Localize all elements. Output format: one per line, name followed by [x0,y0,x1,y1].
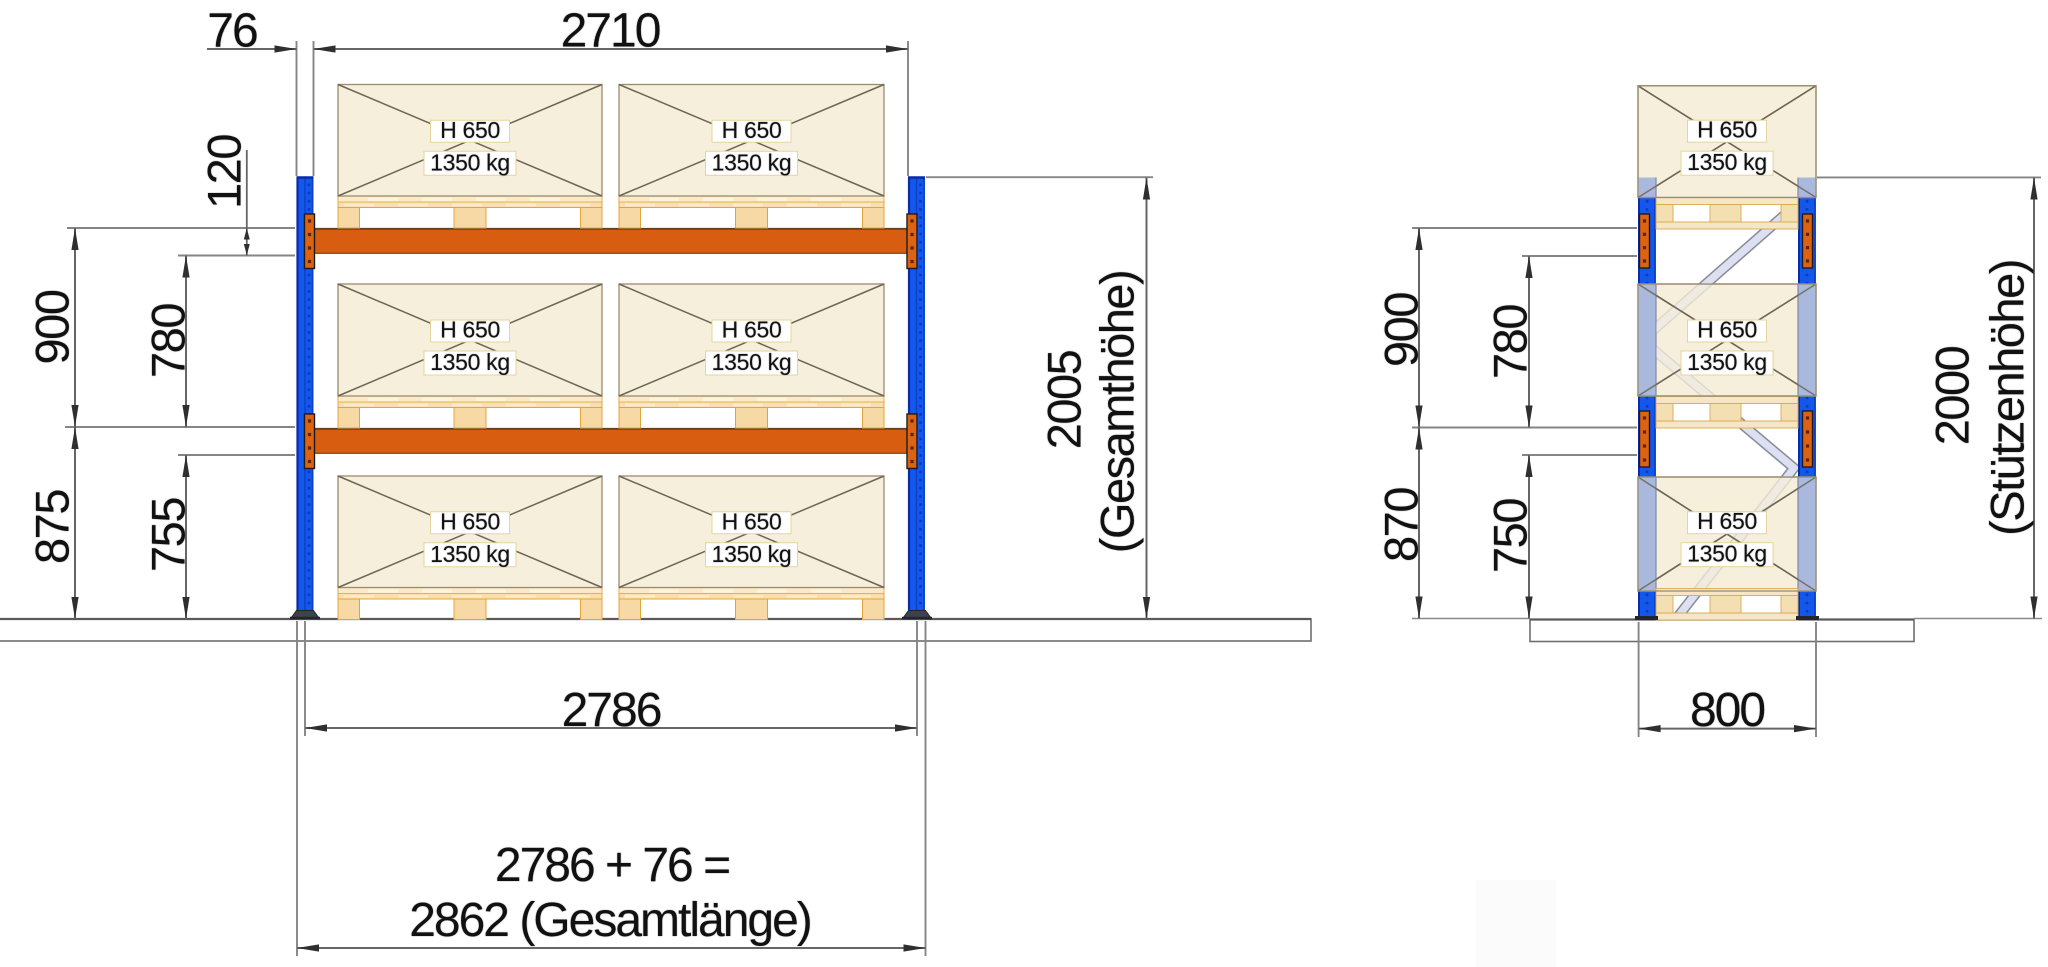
svg-text:875: 875 [26,490,79,564]
svg-text:76: 76 [207,5,257,58]
svg-text:780: 780 [142,304,195,378]
svg-text:870: 870 [1375,488,1428,562]
svg-text:1350 kg: 1350 kg [1687,541,1767,567]
svg-text:1350 kg: 1350 kg [430,349,510,375]
svg-text:750: 750 [1484,499,1537,573]
svg-text:1350 kg: 1350 kg [1687,349,1767,375]
svg-text:2862 (Gesamtlänge): 2862 (Gesamtlänge) [409,894,811,947]
svg-text:H 650: H 650 [440,317,500,343]
svg-text:120: 120 [198,135,251,209]
svg-text:2005: 2005 [1038,350,1091,449]
svg-text:755: 755 [142,498,195,572]
svg-text:2000: 2000 [1926,346,1979,445]
svg-text:1350 kg: 1350 kg [712,541,792,567]
svg-text:1350 kg: 1350 kg [712,349,792,375]
svg-text:(Gesamthöhe): (Gesamthöhe) [1091,271,1144,553]
svg-text:2786: 2786 [562,684,661,737]
svg-text:2786 + 76 =: 2786 + 76 = [495,839,729,892]
svg-text:(Stützenhöhe): (Stützenhöhe) [1981,260,2034,536]
svg-text:H 650: H 650 [722,117,782,143]
svg-text:800: 800 [1690,684,1764,737]
svg-text:H 650: H 650 [440,117,500,143]
svg-text:1350 kg: 1350 kg [712,149,792,175]
svg-text:2710: 2710 [561,5,660,58]
svg-text:900: 900 [26,290,79,364]
svg-text:H 650: H 650 [1697,317,1757,343]
svg-text:780: 780 [1484,305,1537,379]
svg-text:H 650: H 650 [1697,508,1757,534]
svg-text:900: 900 [1375,293,1428,367]
svg-text:1350 kg: 1350 kg [430,541,510,567]
svg-text:H 650: H 650 [1697,117,1757,143]
svg-text:H 650: H 650 [440,508,500,534]
svg-text:1350 kg: 1350 kg [1687,149,1767,175]
svg-text:H 650: H 650 [722,317,782,343]
svg-text:1350 kg: 1350 kg [430,149,510,175]
svg-text:H 650: H 650 [722,508,782,534]
